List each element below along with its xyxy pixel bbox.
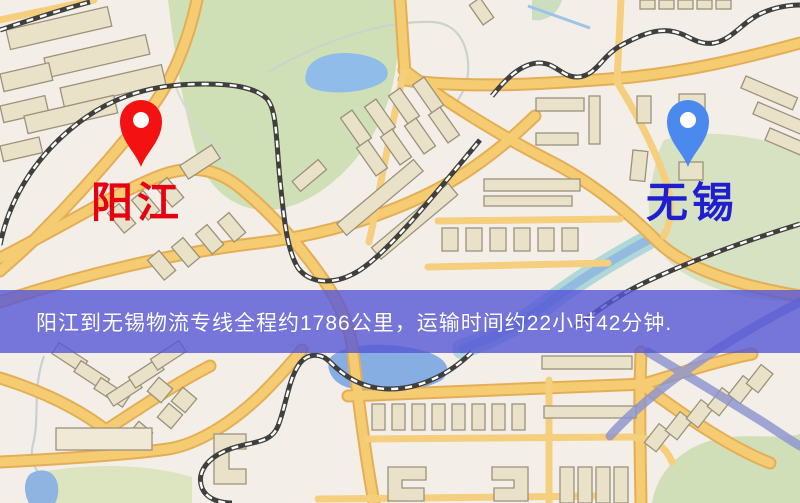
map-canvas: 阳江 无锡 — [0, 0, 800, 503]
origin-label: 阳江 — [91, 179, 183, 226]
route-info-banner: 阳江到无锡物流专线全程约1786公里，运输时间约22小时42分钟. — [0, 290, 800, 353]
destination-label: 无锡 — [646, 179, 738, 226]
map-screenshot: 阳江 无锡 阳江到无锡物流专线全程约1786公里，运输时间约22小时42分钟. — [0, 0, 800, 503]
origin-pin-hole — [133, 112, 149, 128]
route-info-text: 阳江到无锡物流专线全程约1786公里，运输时间约22小时42分钟. — [36, 307, 672, 337]
destination-pin-hole — [680, 112, 696, 128]
